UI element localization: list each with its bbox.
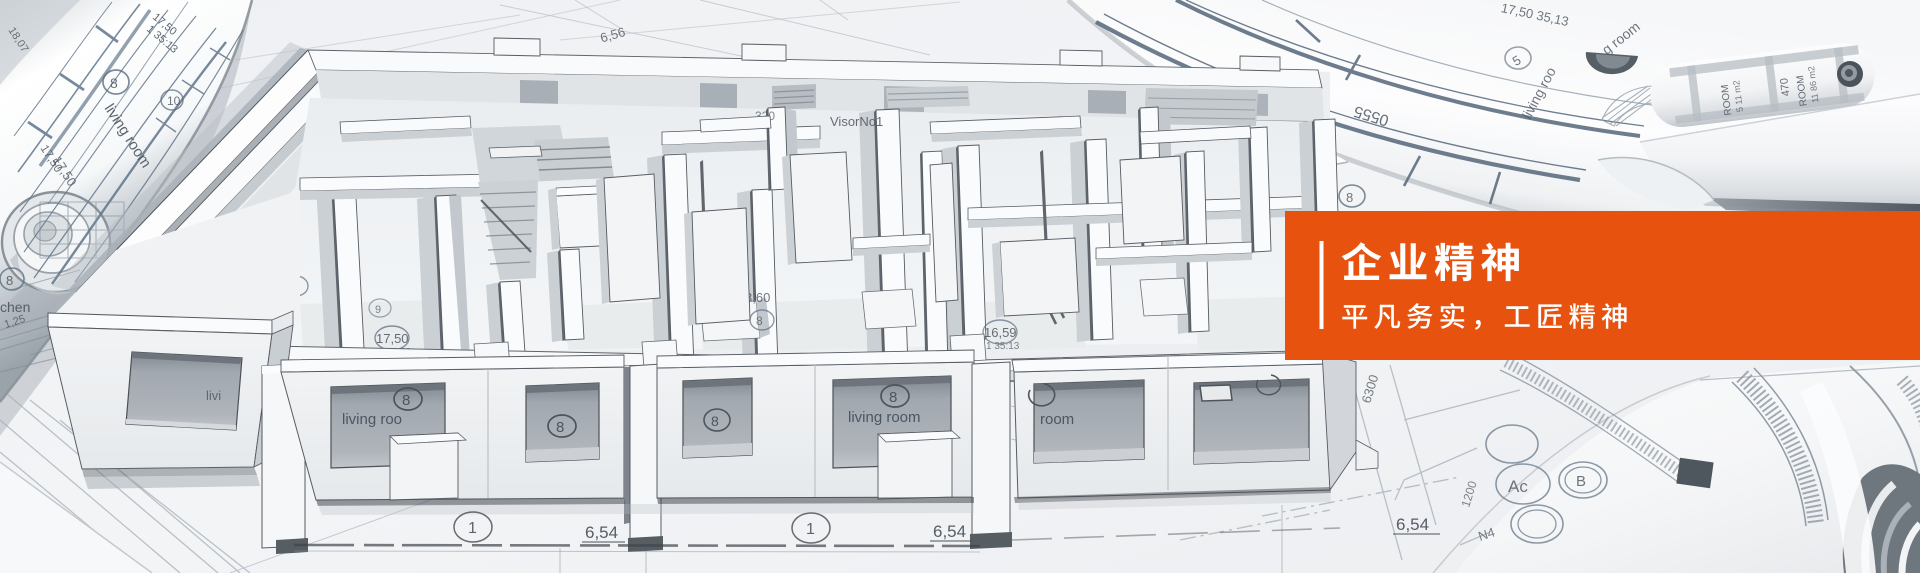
svg-text:8: 8 [711, 413, 719, 429]
svg-text:10: 10 [167, 94, 181, 108]
svg-text:8: 8 [110, 75, 118, 91]
svg-text:living room: living room [848, 409, 921, 426]
svg-text:6,54: 6,54 [1396, 515, 1429, 534]
svg-text:1: 1 [468, 520, 477, 537]
svg-text:6,54: 6,54 [933, 522, 966, 541]
svg-text:6,54: 6,54 [585, 523, 618, 542]
svg-text:living roo: living roo [342, 411, 402, 428]
svg-text:8: 8 [556, 419, 564, 436]
svg-text:chen: chen [0, 299, 30, 315]
svg-text:9: 9 [375, 304, 381, 316]
svg-text:8: 8 [6, 273, 13, 288]
svg-text:8: 8 [889, 389, 897, 406]
svg-text:8: 8 [756, 314, 763, 328]
svg-text:Ac: Ac [1508, 477, 1528, 496]
svg-text:1 35:13: 1 35:13 [986, 341, 1020, 352]
svg-text:8: 8 [1346, 190, 1353, 205]
svg-text:VisorNo1: VisorNo1 [830, 114, 883, 129]
svg-text:1: 1 [806, 521, 815, 538]
svg-text:470: 470 [1778, 77, 1792, 97]
svg-text:17,50: 17,50 [376, 331, 409, 346]
svg-text:8: 8 [402, 392, 410, 409]
svg-text:room: room [1040, 411, 1074, 428]
svg-text:livi: livi [206, 388, 221, 403]
svg-text:16,59: 16,59 [984, 325, 1017, 340]
svg-text:B: B [1576, 473, 1586, 490]
